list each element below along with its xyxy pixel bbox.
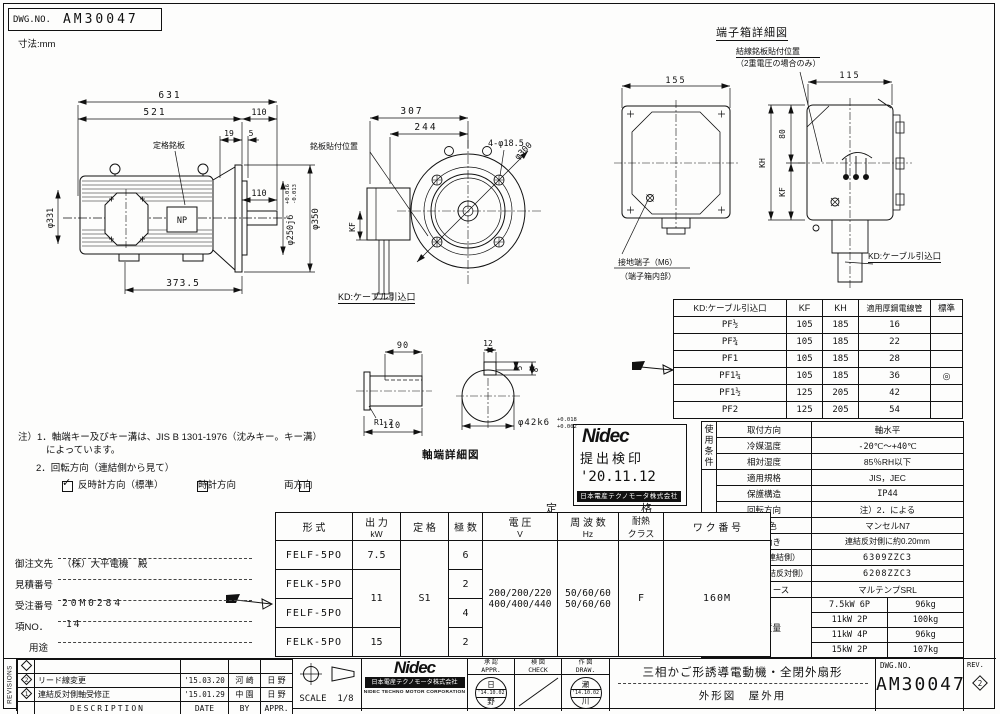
dim-110-key: 110 bbox=[383, 421, 401, 431]
kd-header-conduit: 適用厚鋼電線管 bbox=[859, 300, 931, 317]
nameplate-label: 定格銘板 bbox=[153, 140, 185, 150]
svg-text:2: 2 bbox=[24, 677, 28, 684]
revision-diamond-icon: 2 bbox=[21, 674, 32, 685]
dwg-no-value: AM30047 bbox=[51, 12, 139, 27]
use-label: 用途 bbox=[29, 640, 48, 654]
dim-kf-side: KF bbox=[778, 187, 787, 197]
dim-kf-front: KF bbox=[348, 222, 357, 232]
wiring-plate-label: 結線銘板貼付位置 （2重電圧の場合のみ） bbox=[736, 46, 820, 69]
scale-block: SCALE 1/8 bbox=[292, 659, 362, 711]
svg-text:1: 1 bbox=[24, 691, 28, 698]
rt-output-1: 7.5 bbox=[353, 541, 401, 570]
kd-size-selected: PF1¼ bbox=[674, 368, 787, 385]
check-stamp-col: 検 図 CHECK bbox=[515, 659, 562, 711]
revisions-label: REVISIONS bbox=[7, 660, 14, 710]
terminal-box-front-outline bbox=[614, 100, 738, 234]
rating-table: 形 式 出 力kW 定 格 極 数 電 圧V 周 波 数Hz 耐熱クラス ワ ク… bbox=[275, 512, 771, 657]
rev-mark-cell: 2 bbox=[18, 674, 35, 688]
inspection-stamp-box: Nidec 提出検印 '20.11.12 日本電産テクノモータ株式会社 bbox=[573, 424, 687, 506]
kd-header-kf: KF bbox=[787, 300, 823, 317]
rt-h-heat: 耐熱クラス bbox=[619, 513, 664, 541]
dim-kh: KH bbox=[758, 158, 767, 168]
check-icon: ✓ bbox=[62, 476, 71, 489]
cable-entry-label-front: KD:ケーブル引込口 bbox=[338, 290, 415, 304]
rt-model-2: FELK-5PO bbox=[276, 570, 353, 599]
rt-output-23: 11 bbox=[353, 570, 401, 628]
dim-631: 631 bbox=[158, 90, 181, 101]
dim-12: 12 bbox=[483, 339, 493, 348]
kd-size: PF1½ bbox=[674, 385, 787, 402]
kd-size: PF¾ bbox=[674, 334, 787, 351]
dim-dia-42k6: φ42k6 bbox=[518, 418, 550, 428]
rt-h-duty: 定 格 bbox=[401, 513, 449, 541]
rt-model-1: FELF-5PO bbox=[276, 541, 353, 570]
dim-42-tol-upper: +0.018 bbox=[557, 417, 577, 423]
inspection-stamp-title: 提出検印 bbox=[574, 448, 686, 467]
dim-dia-250: φ250j6 bbox=[286, 215, 296, 246]
ground-terminal-label: 接地端子（M6） bbox=[618, 257, 677, 267]
dim-115: 115 bbox=[839, 71, 860, 81]
revision-table: 2 リード線変更 '15.03.20 河 崎 日 野 1 連結反対側軸受修正 '… bbox=[17, 659, 293, 714]
rt-model-4: FELK-5PO bbox=[276, 628, 353, 657]
dim-155: 155 bbox=[665, 76, 686, 86]
kd-header-kh: KH bbox=[823, 300, 859, 317]
kd-size: PF½ bbox=[674, 317, 787, 334]
revisions-strip: REVISIONS bbox=[4, 659, 17, 711]
cable-entry-table: KD:ケーブル引込口 KF KH 適用厚鋼電線管 標準 PF½10518516 … bbox=[673, 299, 963, 419]
rev-diamond-icon: 2 bbox=[972, 675, 988, 691]
engineering-drawing-sheet: DWG.NO. AM30047 寸法:mm 631 521 110 19 5 1 bbox=[0, 0, 1000, 714]
rt-poles-2: 2 bbox=[449, 570, 483, 599]
drawing-title-line1: 三相かご形誘導電動機・全閉外扇形 bbox=[610, 664, 875, 680]
rev-mark-cell: 1 bbox=[18, 688, 35, 702]
np-plate-label: NP bbox=[177, 216, 187, 226]
rt-h-output: 出 力kW bbox=[353, 513, 401, 541]
rev-col: REV. 2 bbox=[964, 659, 996, 711]
rt-output-4: 15 bbox=[353, 628, 401, 657]
dim-244: 244 bbox=[414, 122, 437, 133]
dim-250-tol-lower: -0.013 bbox=[292, 184, 298, 204]
projection-symbol-icon bbox=[298, 662, 356, 686]
nidec-company-en: NIDEC TECHNO MOTOR CORPORATION bbox=[362, 690, 467, 695]
ground-terminal-label2: （端子箱内部） bbox=[620, 271, 676, 281]
dim-110-shaft: 110 bbox=[251, 189, 266, 199]
scale-value: SCALE 1/8 bbox=[292, 694, 361, 704]
rt-h-model: 形 式 bbox=[276, 513, 353, 541]
item-no-label: 項NO． bbox=[15, 619, 48, 633]
flange-outline bbox=[367, 140, 542, 299]
approval-stamp: 日 '14.10.02 野 bbox=[475, 677, 507, 709]
cable-entry-label-tbox: KD:ケーブル引込口 bbox=[868, 250, 941, 263]
dim-bolt-holes: 4-φ18.5 bbox=[488, 139, 524, 149]
kd-size: PF1 bbox=[674, 351, 787, 368]
dwg-no-box: DWG.NO. AM30047 bbox=[8, 8, 162, 31]
nidec-company-block: Nidec 日本電産テクノモータ株式会社 NIDEC TECHNO MOTOR … bbox=[362, 659, 468, 711]
note-line3: 2．回転方向（連結側から見て） bbox=[36, 460, 174, 474]
rt-heat: F bbox=[619, 541, 664, 657]
dim-dia-331: φ331 bbox=[46, 208, 56, 228]
inspection-stamp-date: '20.11.12 bbox=[574, 467, 686, 485]
order-no-label: 受注番号 bbox=[15, 598, 53, 612]
rt-h-frame: ワ ク 番 号 bbox=[664, 513, 771, 541]
draw-stamp-col: 作 図 DRAW. 瀬 '14.10.02 川 bbox=[562, 659, 610, 711]
kd-header-cable: KD:ケーブル引込口 bbox=[674, 300, 787, 317]
dwg-no-col: DWG.NO. AM30047 bbox=[876, 659, 964, 711]
shaft-detail-title: 軸端詳細図 bbox=[422, 447, 480, 462]
drawing-title-line2: 外形図 屋外用 bbox=[610, 688, 875, 703]
checkbox-ccw-label: 反時計方向（標準） bbox=[78, 477, 164, 491]
rt-h-voltage: 電 圧V bbox=[483, 513, 558, 541]
rt-voltage: 200/200/220400/400/440 bbox=[483, 541, 558, 657]
side-view-dimensions bbox=[58, 102, 315, 294]
dwg-no-label: DWG.NO. bbox=[9, 15, 51, 25]
dim-19: 19 bbox=[224, 129, 234, 138]
nidec-logo: Nidec bbox=[574, 425, 686, 448]
rt-poles-1: 6 bbox=[449, 541, 483, 570]
rt-poles-3: 4 bbox=[449, 599, 483, 628]
dim-521: 521 bbox=[143, 107, 166, 118]
dim-373-5: 373.5 bbox=[166, 278, 200, 289]
terminal-box-side-drawing: 115 KH 80 KF bbox=[760, 70, 995, 298]
rev-mark-cell bbox=[18, 660, 35, 674]
spec-group-conditions: 使用条件 bbox=[702, 422, 717, 470]
note-line1: 注）1．軸端キー及びキー溝は、JIS B 1301-1976（沈みキー。キー溝） bbox=[18, 429, 322, 443]
revision-diamond-icon: 1 bbox=[21, 688, 32, 699]
dim-80: 80 bbox=[778, 129, 787, 139]
wiring-plate-label-line2: （2重電圧の場合のみ） bbox=[736, 58, 820, 69]
nidec-logo-bottom: Nidec bbox=[362, 659, 467, 677]
dim-dia-350: φ350 bbox=[311, 208, 321, 230]
svg-text:2: 2 bbox=[978, 679, 983, 688]
rt-h-freq: 周 波 数Hz bbox=[558, 513, 619, 541]
rt-freq: 50/60/6050/60/60 bbox=[558, 541, 619, 657]
rt-model-3: FELF-5PO bbox=[276, 599, 353, 628]
revision-diamond-icon bbox=[21, 660, 32, 671]
motor-side-view-drawing: 631 521 110 19 5 110 373.5 φ331 φ250j6 +… bbox=[25, 78, 355, 306]
rt-duty: S1 bbox=[401, 541, 449, 657]
terminal-box-title: 端子箱詳細図 bbox=[716, 24, 788, 41]
rev-mark-cell bbox=[18, 702, 35, 714]
dim-307: 307 bbox=[400, 106, 423, 117]
dim-5: 5 bbox=[249, 129, 254, 138]
motor-outline bbox=[63, 164, 287, 272]
draw-stamp: 瀬 '14.10.02 川 bbox=[570, 677, 602, 709]
dwg-no-col-label: DWG.NO. bbox=[876, 659, 963, 670]
dim-8-key: 8 bbox=[531, 367, 540, 372]
checkbox-cw-label: 時計方向 bbox=[198, 477, 236, 491]
plate-position-label: 銘板貼付位置 bbox=[310, 141, 358, 152]
rt-frame: 160M bbox=[664, 541, 771, 657]
nidec-company-jp: 日本電産テクノモータ株式会社 bbox=[365, 677, 465, 688]
hand-check-arrow-order bbox=[224, 592, 276, 614]
shaft-side-outline bbox=[356, 372, 432, 410]
rt-h-poles: 極 数 bbox=[449, 513, 483, 541]
quote-label: 見積番号 bbox=[15, 577, 53, 591]
units-note: 寸法:mm bbox=[18, 36, 55, 50]
kd-header-std: 標準 bbox=[931, 300, 963, 317]
motor-front-view-drawing: 307 244 4-φ18.5 φ300 KF bbox=[352, 88, 617, 303]
rev-col-label: REV. bbox=[964, 659, 996, 669]
checkbox-ccw-checked[interactable]: ✓ bbox=[62, 481, 73, 492]
customer-label: 御注文先 bbox=[15, 556, 53, 570]
drawing-title-col: 三相かご形誘導電動機・全閉外扇形 外形図 屋外用 bbox=[610, 659, 876, 711]
checkbox-both-label: 両方向 bbox=[284, 477, 313, 491]
rt-poles-4: 2 bbox=[449, 628, 483, 657]
approval-stamp-col: 承 認 APPR. 日 '14.10.02 野 bbox=[468, 659, 515, 711]
title-block: REVISIONS 2 リード線変更 '15.03.20 河 崎 日 野 1 連… bbox=[4, 658, 996, 710]
kd-size: PF2 bbox=[674, 402, 787, 419]
dim-250-tol-upper: +0.016 bbox=[285, 184, 291, 204]
dim-5-key: 5 bbox=[515, 366, 524, 371]
shaft-end-outline bbox=[456, 362, 520, 428]
hand-check-arrow-kd bbox=[630, 360, 676, 378]
dim-110-flange: 110 bbox=[251, 108, 266, 118]
wiring-plate-label-line1: 結線銘板貼付位置 bbox=[736, 46, 820, 58]
dim-90: 90 bbox=[397, 341, 409, 351]
dwg-no-col-value: AM30047 bbox=[876, 674, 963, 695]
check-slash-icon bbox=[516, 675, 561, 709]
note-line2: によっています。 bbox=[46, 442, 120, 456]
